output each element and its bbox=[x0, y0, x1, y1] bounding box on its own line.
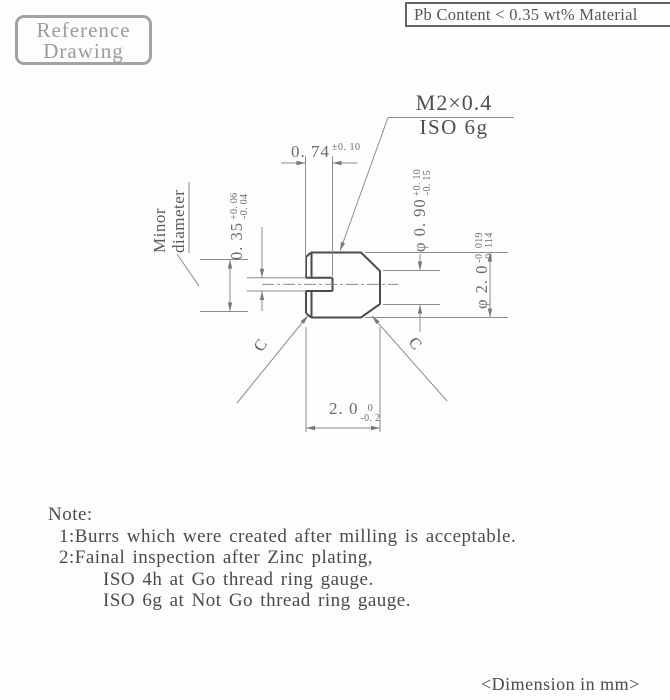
thread-spec: M2×0.4 bbox=[390, 90, 518, 116]
drawing-sheet: Reference Drawing Pb Content < 0.35 wt% … bbox=[0, 0, 670, 700]
dimension-lines bbox=[177, 118, 514, 433]
note-item-2a: ISO 4h at Go thread ring gauge. bbox=[103, 569, 516, 591]
dim-major-diameter-value: φ 2. 0 bbox=[472, 265, 491, 309]
notes-block: Note: 1:Burrs which were created after m… bbox=[0, 504, 516, 612]
dim-slot-depth-value: 0. 74 bbox=[291, 142, 330, 161]
screw-outline bbox=[306, 253, 380, 318]
dim-slot-width: 0. 35+0. 06-0. 04 bbox=[227, 193, 249, 260]
dim-length-tolerances: 0-0. 2 bbox=[361, 404, 381, 423]
dim-slot-depth: 0. 74±0. 10 bbox=[291, 142, 361, 162]
tol-lower: -0. 15 bbox=[423, 170, 433, 195]
dim-slot-width-tolerances: +0. 06-0. 04 bbox=[230, 193, 249, 220]
dim-slot-width-value: 0. 35 bbox=[227, 222, 246, 260]
dim-major-diameter-tolerances: -0. 019-0. 114 bbox=[475, 232, 494, 262]
notes-title: Note: bbox=[48, 504, 516, 526]
tol-lower: -0. 114 bbox=[485, 232, 495, 262]
minor-diameter-line2: diameter bbox=[169, 190, 188, 253]
material-banner: Pb Content < 0.35 wt% Material bbox=[405, 2, 670, 27]
note-item-2b: ISO 6g at Not Go thread ring gauge. bbox=[103, 590, 516, 612]
dim-point-diameter-value: φ 0. 90 bbox=[410, 198, 429, 252]
note-item-2: 2:Fainal inspection after Zinc plating, bbox=[59, 547, 516, 569]
stamp-line2: Drawing bbox=[18, 41, 149, 62]
reference-drawing-stamp: Reference Drawing bbox=[15, 15, 152, 65]
minor-diameter-label: Minor diameter bbox=[150, 190, 188, 253]
thread-fit-class: ISO 6g bbox=[390, 116, 518, 138]
tol-lower: -0. 2 bbox=[361, 414, 381, 424]
thread-callout: M2×0.4 ISO 6g bbox=[390, 90, 518, 138]
stamp-line1: Reference bbox=[18, 20, 149, 41]
units-note: <Dimension in mm> bbox=[481, 674, 640, 695]
dim-length-value: 2. 0 bbox=[329, 399, 359, 418]
arrowheads bbox=[228, 161, 492, 430]
dim-point-diameter-tolerances: +0. 10-0. 15 bbox=[413, 169, 432, 196]
dim-point-diameter: φ 0. 90+0. 10-0. 15 bbox=[410, 169, 432, 252]
tol-lower: -0. 04 bbox=[240, 194, 250, 219]
minor-diameter-line1: Minor bbox=[150, 190, 169, 253]
note-item-1: 1:Burrs which were created after milling… bbox=[59, 526, 516, 548]
dim-slot-depth-tolerance: ±0. 10 bbox=[332, 142, 361, 153]
dim-major-diameter: φ 2. 0-0. 019-0. 114 bbox=[472, 232, 494, 309]
dim-length: 2. 00-0. 2 bbox=[329, 399, 380, 423]
